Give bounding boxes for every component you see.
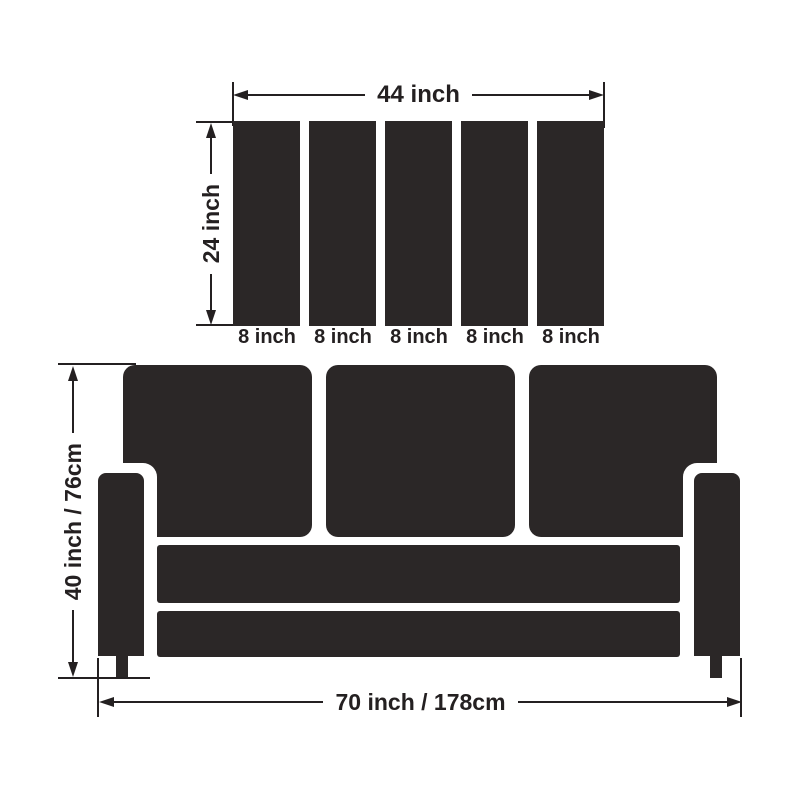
sofa-width-dimension-label: 70 inch / 178cm (323, 691, 517, 714)
sofa-seat-band (157, 545, 680, 603)
slat-width-label: 8 inch (309, 327, 377, 347)
arrowhead-down-icon (68, 662, 78, 677)
sofa-leg-left (116, 656, 128, 678)
dimension-diagram-canvas: 44 inch 24 inch 8 inch 8 inch 8 inch 8 i… (0, 0, 800, 800)
slat-width-label: 8 inch (385, 327, 453, 347)
panel-slat (537, 121, 604, 326)
slat-width-label: 8 inch (537, 327, 605, 347)
arrowhead-right-icon (727, 697, 742, 707)
sofa-back-cushion-middle (326, 365, 515, 537)
panel-height-dimension-label: 24 inch (200, 174, 223, 273)
arrowhead-down-icon (206, 310, 216, 325)
panel-slat (233, 121, 300, 326)
arrowhead-up-icon (206, 123, 216, 138)
sofa-armrest-left (98, 473, 144, 656)
panel-slat (461, 121, 528, 326)
sofa-base-band (157, 611, 680, 657)
panel-slat (385, 121, 452, 326)
arrowhead-up-icon (68, 366, 78, 381)
sofa-height-dimension: 40 inch / 76cm (59, 366, 87, 677)
slat-width-label: 8 inch (233, 327, 301, 347)
sofa-height-dimension-label: 40 inch / 76cm (62, 433, 85, 610)
arrowhead-left-icon (99, 697, 114, 707)
panel-slat (309, 121, 376, 326)
panel-width-dimension-label: 44 inch (365, 83, 472, 107)
sofa-armrest-right (694, 473, 740, 656)
panel-width-dimension: 44 inch (233, 83, 604, 107)
panel-height-dimension: 24 inch (197, 123, 225, 325)
tick-mark (58, 677, 150, 679)
tick-mark (58, 363, 136, 365)
sofa-leg-right (710, 656, 722, 678)
slat-width-label: 8 inch (461, 327, 529, 347)
arrowhead-left-icon (233, 90, 248, 100)
arrowhead-right-icon (589, 90, 604, 100)
sofa-width-dimension: 70 inch / 178cm (99, 690, 742, 714)
